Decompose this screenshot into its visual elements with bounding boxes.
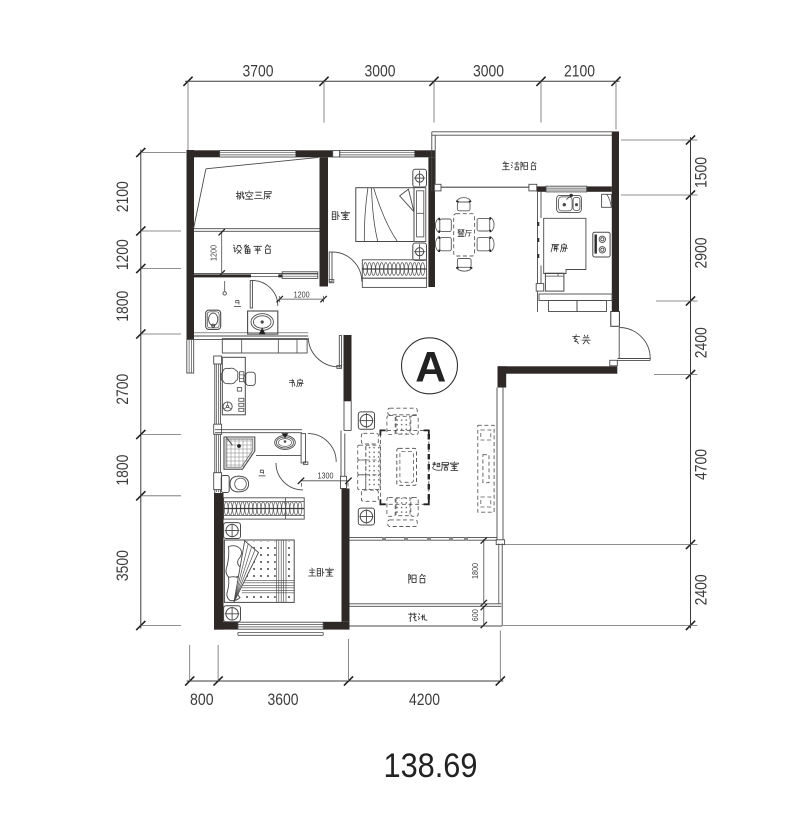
svg-text:2700: 2700 (113, 374, 132, 405)
svg-text:2100: 2100 (113, 181, 132, 212)
svg-text:2400: 2400 (692, 574, 711, 605)
svg-text:1200: 1200 (294, 290, 311, 299)
svg-text:138.69: 138.69 (384, 747, 478, 785)
svg-text:1500: 1500 (692, 157, 711, 188)
svg-text:1800: 1800 (471, 562, 480, 579)
svg-text:1300: 1300 (318, 472, 335, 481)
svg-text:800: 800 (190, 690, 214, 709)
svg-text:2100: 2100 (564, 62, 595, 81)
svg-text:1200: 1200 (210, 244, 219, 261)
svg-text:1800: 1800 (113, 291, 132, 322)
svg-text:3500: 3500 (113, 550, 132, 581)
svg-text:4700: 4700 (692, 449, 711, 480)
svg-text:3700: 3700 (243, 62, 274, 81)
svg-text:4200: 4200 (409, 690, 440, 709)
svg-text:2400: 2400 (692, 327, 711, 358)
svg-text:1800: 1800 (113, 455, 132, 486)
svg-text:2900: 2900 (692, 238, 711, 269)
svg-text:A: A (415, 343, 446, 391)
svg-text:3000: 3000 (473, 62, 504, 81)
svg-text:3000: 3000 (365, 62, 396, 81)
svg-text:3600: 3600 (268, 690, 299, 709)
svg-text:600: 600 (471, 609, 480, 622)
svg-text:1200: 1200 (113, 239, 132, 270)
